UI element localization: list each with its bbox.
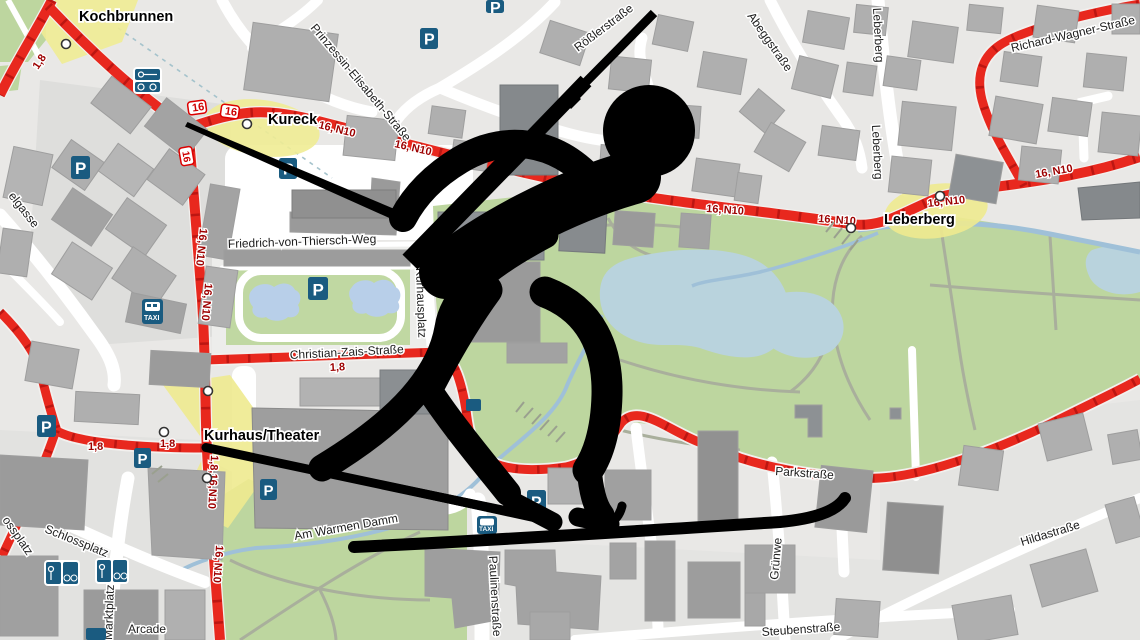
svg-text:TAXI: TAXI xyxy=(144,315,159,322)
svg-text:TAXI: TAXI xyxy=(479,526,494,533)
svg-text:Leberberg: Leberberg xyxy=(869,124,886,179)
svg-text:Leberberg: Leberberg xyxy=(870,7,887,62)
svg-text:Kochbrunnen: Kochbrunnen xyxy=(79,9,173,25)
svg-text:P: P xyxy=(75,159,86,178)
svg-text:P: P xyxy=(313,281,324,300)
svg-text:1,8: 1,8 xyxy=(88,441,103,453)
svg-text:1,8: 1,8 xyxy=(160,438,175,450)
svg-text:Kurhaus/Theater: Kurhaus/Theater xyxy=(204,428,320,444)
svg-text:P: P xyxy=(490,0,501,17)
svg-text:Arcade: Arcade xyxy=(128,622,166,636)
svg-text:P: P xyxy=(424,32,435,49)
svg-text:16: 16 xyxy=(191,101,205,115)
svg-text:1,8: 1,8 xyxy=(330,361,346,374)
svg-text:Kureck: Kureck xyxy=(268,112,318,128)
svg-text:P: P xyxy=(138,451,148,468)
svg-text:P: P xyxy=(264,483,274,500)
svg-text:P: P xyxy=(41,420,52,437)
svg-text:16: 16 xyxy=(224,105,238,119)
svg-text:Leberberg: Leberberg xyxy=(884,212,955,228)
